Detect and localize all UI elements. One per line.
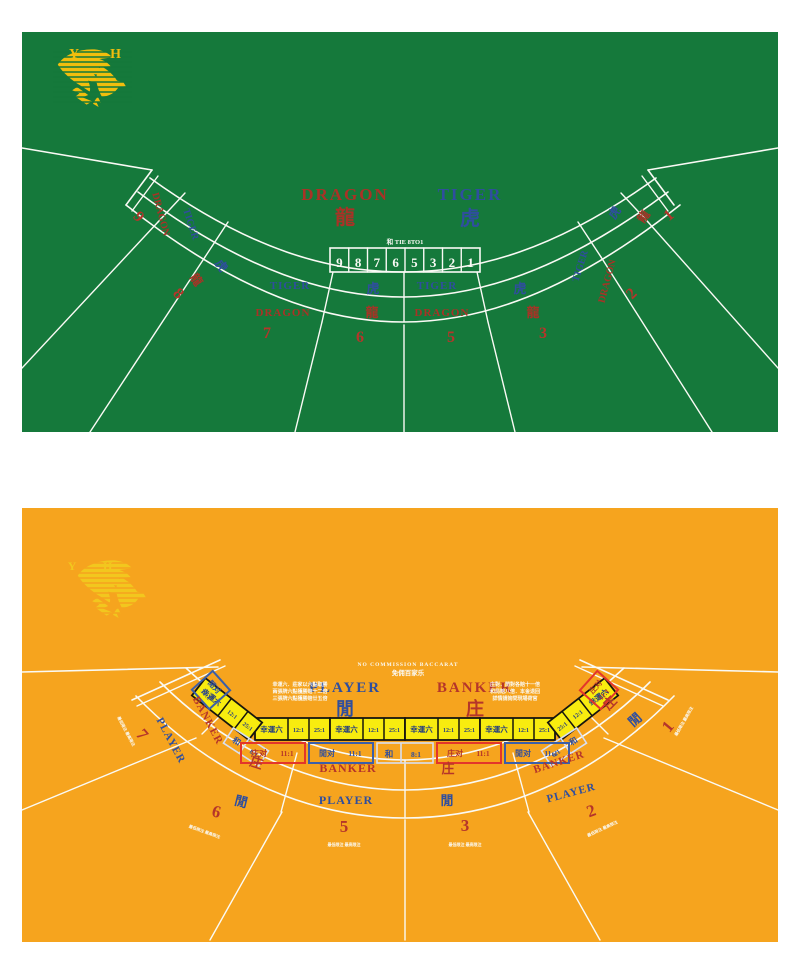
- tie-box-1[interactable]: 1: [467, 255, 474, 270]
- svg-text:兩張牌六點獲勝賠十二倍: 兩張牌六點獲勝賠十二倍: [272, 688, 327, 695]
- svg-text:11:1: 11:1: [280, 749, 294, 758]
- bet-dragon-seat3[interactable]: 龍: [526, 305, 539, 320]
- svg-text:幸運六．莊家以六點取勝: 幸運六．莊家以六點取勝: [272, 681, 328, 688]
- seat-number-6: 6: [356, 329, 364, 346]
- svg-text:幸運六: 幸運六: [260, 724, 283, 734]
- lucky6-group-4[interactable]: 幸運六 12:1 25:1: [480, 718, 555, 740]
- svg-text:和: 和: [385, 749, 394, 759]
- bet-tiger-seat5[interactable]: TIGER: [417, 280, 458, 292]
- svg-text:閒对: 閒对: [515, 748, 531, 758]
- bet-player-seat3[interactable]: 閒: [440, 793, 453, 808]
- seat-number-3: 3: [539, 325, 547, 342]
- dragon-tiger-layout: Y H DRAGON 龍 TIGER 虎 和 TIE 8TO1 9 8 7: [22, 32, 778, 432]
- seat-note-3: 最低限注 最高限注: [449, 841, 482, 847]
- bet-tiger-seat7[interactable]: TIGER: [270, 280, 311, 292]
- svg-text:幸運六: 幸運六: [335, 724, 358, 734]
- tie-odds-label: 和 TIE 8TO1: [386, 237, 424, 246]
- svg-text:幸運六: 幸運六: [410, 724, 433, 734]
- lucky6-group-2[interactable]: 幸運六 12:1 25:1: [330, 718, 405, 740]
- svg-text:幸運六: 幸運六: [485, 724, 508, 734]
- lucky6-group-1[interactable]: 幸運六 12:1 25:1: [255, 718, 330, 740]
- seat-number-5: 5: [340, 817, 349, 836]
- bet-tiger-seat6[interactable]: 虎: [366, 281, 379, 296]
- header-en: NO COMMISSION BACCARAT: [357, 662, 458, 668]
- svg-text:12:1: 12:1: [443, 728, 454, 734]
- seat-note-5: 最低限注 最高限注: [328, 841, 361, 847]
- tie-box-5[interactable]: 5: [411, 255, 418, 270]
- tie-box-6[interactable]: 6: [392, 255, 399, 270]
- rules-text-right: 庄對．閒對各賠十一倍 和局賠八倍．本金退回 詳情請詢問現場荷官: [489, 681, 540, 702]
- svg-text:閒对: 閒对: [319, 748, 335, 758]
- seat-number-7: 7: [263, 325, 271, 342]
- seat-number-5: 5: [447, 329, 455, 346]
- svg-text:詳情請詢問現場荷官: 詳情請詢問現場荷官: [492, 695, 537, 702]
- header-zh: 免佣百家乐: [392, 668, 425, 677]
- svg-text:三張牌六點獲勝賠廿五倍: 三張牌六點獲勝賠廿五倍: [272, 695, 327, 702]
- dragon-title-zh: 龍: [335, 205, 355, 229]
- bet-banker-seat5[interactable]: BANKER: [319, 761, 376, 775]
- svg-text:12:1: 12:1: [368, 728, 379, 734]
- green-felt: [22, 32, 778, 432]
- svg-text:25:1: 25:1: [389, 728, 400, 734]
- logo-letters: Y H: [69, 47, 135, 62]
- tiger-title-zh: 虎: [460, 206, 480, 230]
- bet-dragon-seat6[interactable]: 龍: [365, 305, 378, 320]
- svg-text:25:1: 25:1: [539, 728, 550, 734]
- bet-player-seat5[interactable]: PLAYER: [319, 793, 373, 807]
- baccarat-layout: Y H NO COMMISSION BACCARAT 免佣百家乐 PLAYER …: [22, 508, 778, 942]
- tie-box-7[interactable]: 7: [374, 255, 381, 270]
- rules-text-left: 幸運六．莊家以六點取勝 兩張牌六點獲勝賠十二倍 三張牌六點獲勝賠廿五倍: [272, 681, 328, 702]
- tie-box-8[interactable]: 8: [355, 255, 362, 270]
- banker-title-zh: 庄: [466, 698, 484, 719]
- logo-letters: Y H: [68, 559, 125, 573]
- bet-dragon-seat7[interactable]: DRAGON: [256, 307, 311, 319]
- svg-text:25:1: 25:1: [464, 728, 475, 734]
- svg-text:8:1: 8:1: [411, 750, 421, 759]
- tie-box-9[interactable]: 9: [336, 255, 343, 270]
- tiger-title: TIGER: [438, 185, 503, 204]
- tie-box-2[interactable]: 2: [449, 255, 456, 270]
- bet-dragon-seat5[interactable]: DRAGON: [415, 307, 470, 319]
- bet-banker-seat3[interactable]: 庄: [441, 761, 454, 776]
- tie-box-3[interactable]: 3: [430, 255, 437, 270]
- svg-text:和局賠八倍．本金退回: 和局賠八倍．本金退回: [489, 688, 540, 695]
- svg-text:12:1: 12:1: [518, 728, 529, 734]
- svg-text:11:1: 11:1: [476, 749, 490, 758]
- bet-tiger-seat3[interactable]: 虎: [513, 281, 526, 296]
- player-title-zh: 閒: [336, 699, 354, 719]
- svg-text:11:1: 11:1: [348, 749, 362, 758]
- svg-text:12:1: 12:1: [293, 728, 304, 734]
- svg-text:25:1: 25:1: [314, 728, 325, 734]
- seat-number-3: 3: [461, 816, 470, 835]
- svg-text:庄對．閒對各賠十一倍: 庄對．閒對各賠十一倍: [490, 681, 540, 688]
- product-image: Y H DRAGON 龍 TIGER 虎 和 TIE 8TO1 9 8 7: [0, 0, 800, 976]
- svg-text:庄对: 庄对: [447, 748, 463, 758]
- dragon-title: DRAGON: [301, 185, 389, 204]
- lucky6-group-3[interactable]: 幸運六 12:1 25:1: [405, 718, 480, 740]
